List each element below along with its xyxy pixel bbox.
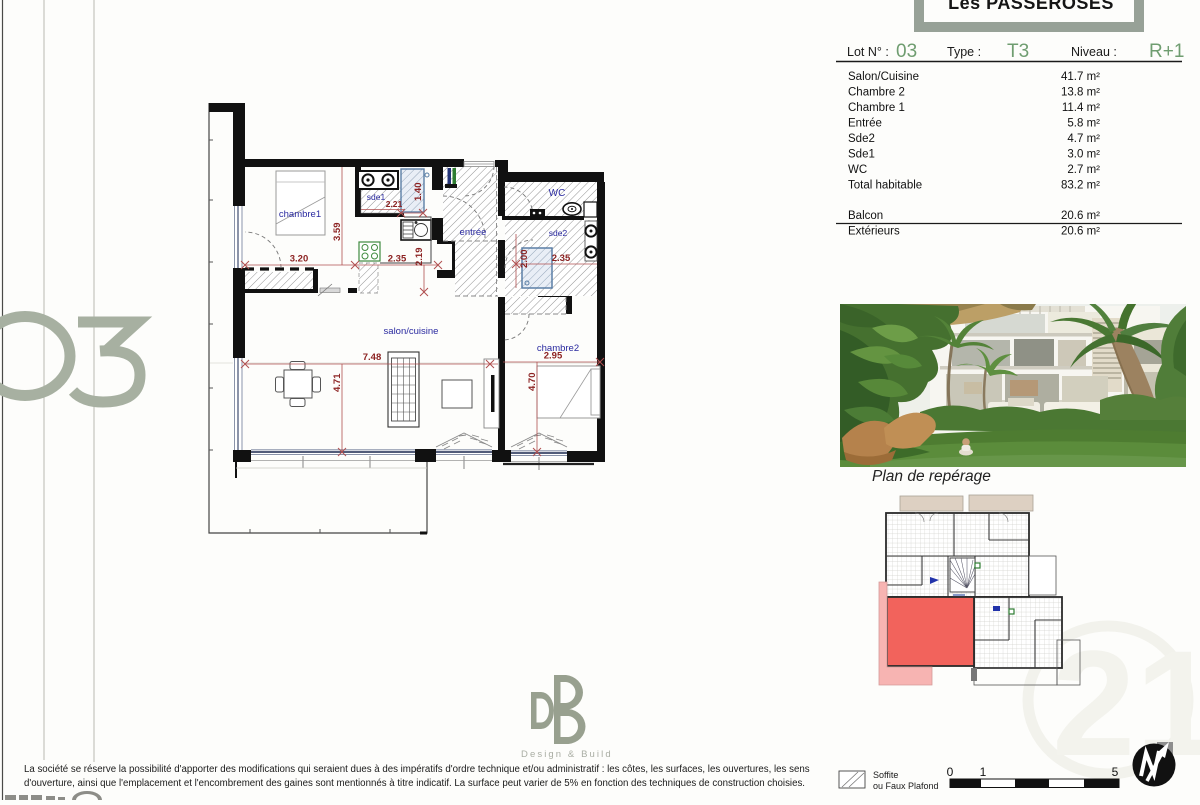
svg-text:4.70: 4.70 (527, 373, 538, 392)
svg-text:sde1: sde1 (367, 192, 386, 202)
svg-text:Niveau :: Niveau : (1071, 45, 1117, 59)
svg-text:5: 5 (1112, 765, 1119, 779)
svg-text:Les PASSEROSES: Les PASSEROSES (948, 0, 1114, 13)
svg-text:03: 03 (896, 41, 917, 62)
svg-text:T3: T3 (1007, 41, 1029, 62)
svg-text:Soffite: Soffite (873, 770, 898, 780)
svg-text:0: 0 (947, 765, 954, 779)
svg-text:Extérieurs: Extérieurs (848, 226, 900, 238)
svg-text:2.21: 2.21 (386, 199, 403, 209)
svg-text:Design & Build: Design & Build (521, 749, 613, 760)
svg-text:2.35: 2.35 (388, 254, 407, 265)
svg-text:21: 21 (1052, 619, 1200, 787)
svg-text:3.0 m²: 3.0 m² (1067, 149, 1100, 161)
svg-text:2.95: 2.95 (544, 351, 563, 362)
svg-text:Chambre 1: Chambre 1 (848, 102, 905, 114)
svg-text:sde2: sde2 (549, 228, 568, 238)
svg-text:chambre1: chambre1 (279, 209, 321, 220)
svg-text:3.20: 3.20 (290, 254, 309, 265)
svg-text:83.2 m²: 83.2 m² (1061, 180, 1100, 192)
svg-text:2.19: 2.19 (414, 248, 425, 267)
svg-text:4.71: 4.71 (332, 373, 343, 392)
svg-text:d'ouverture, ainsi que l'empla: d'ouverture, ainsi que l'emplacement et … (24, 778, 805, 789)
svg-text:WC: WC (549, 188, 566, 199)
svg-text:ou Faux Plafond: ou Faux Plafond (873, 781, 939, 791)
svg-text:R+1: R+1 (1149, 41, 1184, 62)
svg-text:Sde2: Sde2 (848, 133, 875, 145)
svg-text:11.4 m²: 11.4 m² (1062, 102, 1100, 114)
svg-text:2.7 m²: 2.7 m² (1067, 164, 1100, 176)
svg-text:Plan de repérage: Plan de repérage (872, 468, 991, 485)
svg-text:20.6 m²: 20.6 m² (1061, 210, 1100, 222)
svg-text:entrée: entrée (460, 227, 487, 238)
svg-text:13.8 m²: 13.8 m² (1061, 87, 1100, 99)
svg-text:1.40: 1.40 (413, 183, 424, 202)
svg-text:3.59: 3.59 (332, 223, 343, 242)
svg-text:2.00: 2.00 (519, 250, 530, 269)
svg-text:2.35: 2.35 (552, 253, 571, 264)
svg-text:Type :: Type : (947, 45, 981, 59)
svg-text:5.8 m²: 5.8 m² (1067, 118, 1100, 130)
svg-text:41.7 m²: 41.7 m² (1061, 71, 1100, 83)
svg-text:20.6 m²: 20.6 m² (1061, 226, 1100, 238)
svg-text:Total habitable: Total habitable (848, 180, 922, 192)
svg-text:Sde1: Sde1 (848, 149, 875, 161)
svg-text:WC: WC (848, 164, 867, 176)
svg-text:Lot N° :: Lot N° : (847, 45, 889, 59)
svg-text:Chambre 2: Chambre 2 (848, 87, 905, 99)
svg-text:Salon/Cuisine: Salon/Cuisine (848, 71, 919, 83)
svg-text:salon/cuisine: salon/cuisine (384, 326, 439, 337)
svg-text:Balcon: Balcon (848, 210, 883, 222)
svg-text:Entrée: Entrée (848, 118, 882, 130)
svg-text:7.48: 7.48 (363, 352, 382, 363)
svg-text:1: 1 (980, 765, 987, 779)
svg-text:La société se réserve la possi: La société se réserve la possibilité d'a… (24, 764, 810, 775)
svg-text:4.7 m²: 4.7 m² (1067, 133, 1100, 145)
